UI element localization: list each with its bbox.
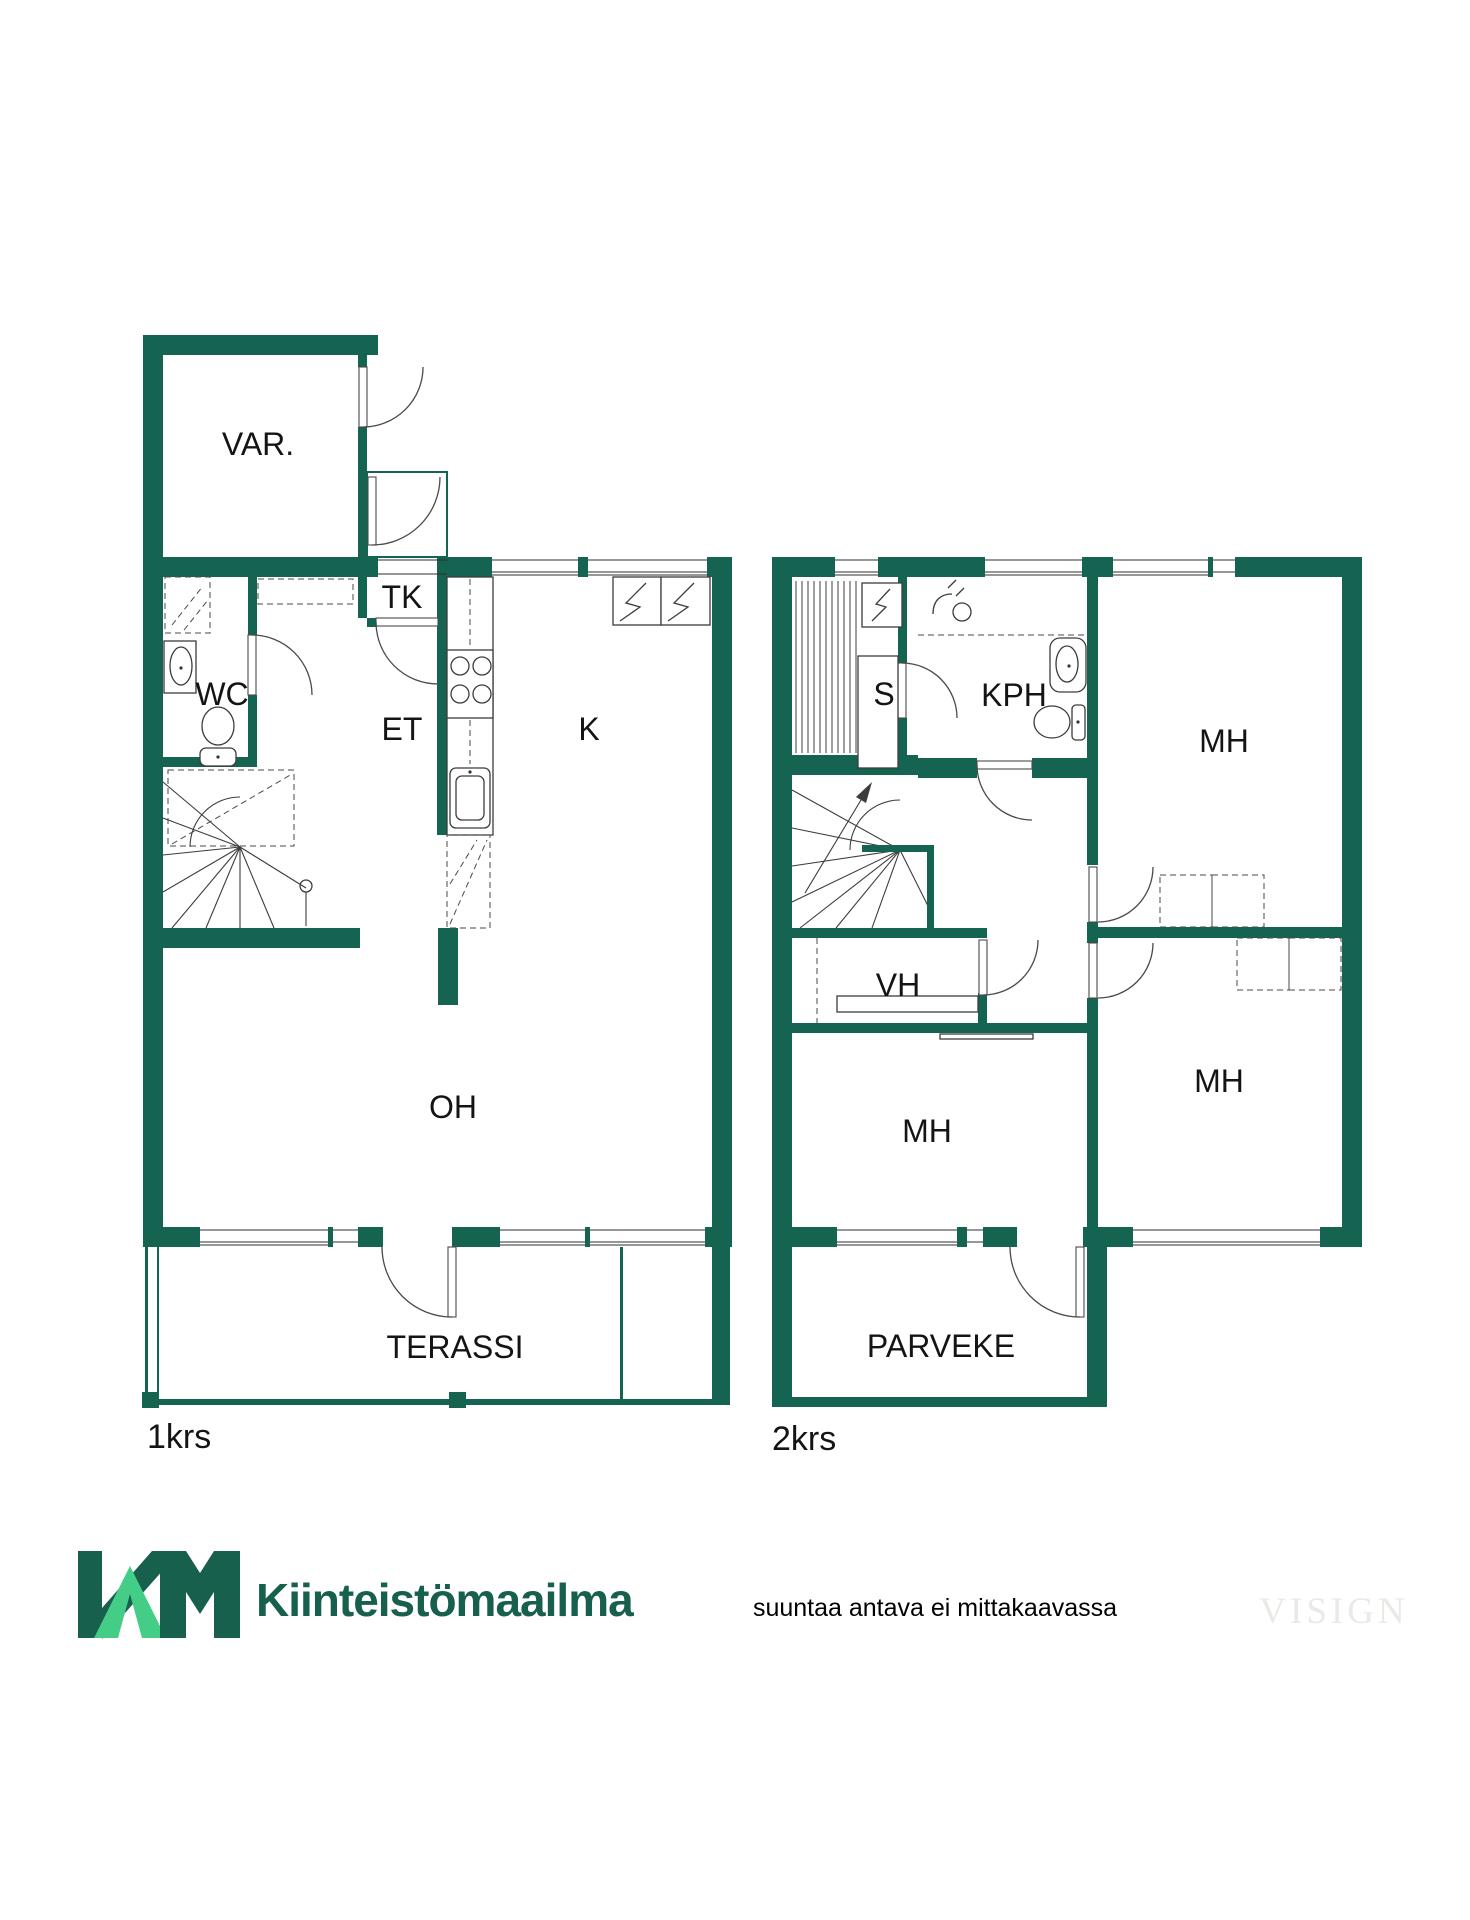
counter-dashed xyxy=(447,835,490,928)
kph-door xyxy=(977,761,1032,820)
wardrobe-shelf-line xyxy=(940,1034,1033,1039)
window xyxy=(835,557,878,577)
room-label-et: ET xyxy=(382,711,423,747)
kph-fixtures xyxy=(918,580,1087,740)
room-label-kph: KPH xyxy=(981,677,1047,713)
room-label-tk: TK xyxy=(382,579,423,615)
terrace-post xyxy=(142,1392,159,1408)
floor1-plan: VAR. TK WC ET K OH TERASSI 1krs xyxy=(142,335,732,1456)
floor1-label: 1krs xyxy=(147,1418,211,1456)
sink-icon xyxy=(164,641,196,693)
window xyxy=(837,1227,957,1247)
room-label-wc: WC xyxy=(195,676,248,712)
floorplan-drawing: VAR. TK WC ET K OH TERASSI 1krs xyxy=(0,0,1470,1920)
bedroom-door xyxy=(1089,867,1153,922)
freezer-icon xyxy=(661,577,710,625)
sauna-benches xyxy=(796,581,856,753)
vh-door xyxy=(979,940,1038,995)
wardrobes-dashed xyxy=(940,875,1341,1039)
shower-area xyxy=(165,577,210,633)
sauna-bench-box xyxy=(858,656,898,768)
terrace xyxy=(142,1247,730,1408)
window xyxy=(1133,1227,1320,1247)
stove-icon xyxy=(447,650,493,718)
room-label-var: VAR. xyxy=(222,426,294,462)
coat-closet-dashed xyxy=(258,579,353,604)
sauna-fixtures xyxy=(796,581,902,768)
room-label-vh: VH xyxy=(876,967,920,1003)
storage-door xyxy=(359,367,423,427)
floorplan-page: VAR. TK WC ET K OH TERASSI 1krs xyxy=(0,0,1470,1920)
window xyxy=(590,1227,705,1247)
room-label-mh-middle: MH xyxy=(902,1113,952,1149)
kitchen-sink-icon xyxy=(450,768,490,828)
wc-fixtures xyxy=(164,577,353,766)
floor2-plan: S KPH MH VH MH MH PARVEKE 2krs xyxy=(772,557,1362,1458)
footer: Kiinteistömaailma suuntaa antava ei mitt… xyxy=(78,1551,1409,1639)
terrace-post xyxy=(449,1392,466,1408)
bedroom-door xyxy=(1089,943,1153,998)
room-label-parveke: PARVEKE xyxy=(867,1328,1015,1364)
room-label-mh-bottom: MH xyxy=(1194,1063,1244,1099)
window xyxy=(333,1227,358,1247)
kitchen-fixtures xyxy=(447,577,710,928)
room-label-k: K xyxy=(578,711,599,747)
window xyxy=(1113,557,1208,577)
window xyxy=(985,557,1082,577)
tk-door xyxy=(376,618,438,684)
shower-faucet-icon xyxy=(933,580,971,621)
visign-watermark: VISIGN xyxy=(1259,1591,1408,1632)
room-label-s: S xyxy=(873,676,894,712)
balcony-door xyxy=(1010,1247,1084,1317)
fridge-icon xyxy=(613,577,661,625)
stair-railing xyxy=(862,845,934,852)
window xyxy=(588,557,707,577)
brand-wordmark: Kiinteistömaailma xyxy=(256,1574,634,1626)
window xyxy=(1213,557,1235,577)
sauna-door xyxy=(898,663,957,718)
window xyxy=(967,1227,983,1247)
window xyxy=(500,1227,585,1247)
stairs-floor1 xyxy=(163,770,312,928)
disclaimer-text: suuntaa antava ei mittakaavassa xyxy=(753,1594,1117,1622)
room-label-mh-top: MH xyxy=(1199,723,1249,759)
toilet-icon xyxy=(200,707,236,766)
sink-icon xyxy=(1050,638,1086,692)
km-logo-icon xyxy=(78,1551,240,1639)
room-label-oh: OH xyxy=(429,1089,477,1125)
sauna-stove-icon xyxy=(862,583,902,627)
stair-railing xyxy=(927,845,934,928)
stair-direction-arrow xyxy=(805,782,872,893)
window xyxy=(200,1227,328,1247)
wc-door xyxy=(248,635,312,695)
terrace-door xyxy=(382,1247,456,1317)
stairs-floor2 xyxy=(792,782,934,928)
window xyxy=(492,557,578,577)
floor2-label: 2krs xyxy=(772,1420,836,1458)
room-label-terassi: TERASSI xyxy=(387,1329,524,1365)
